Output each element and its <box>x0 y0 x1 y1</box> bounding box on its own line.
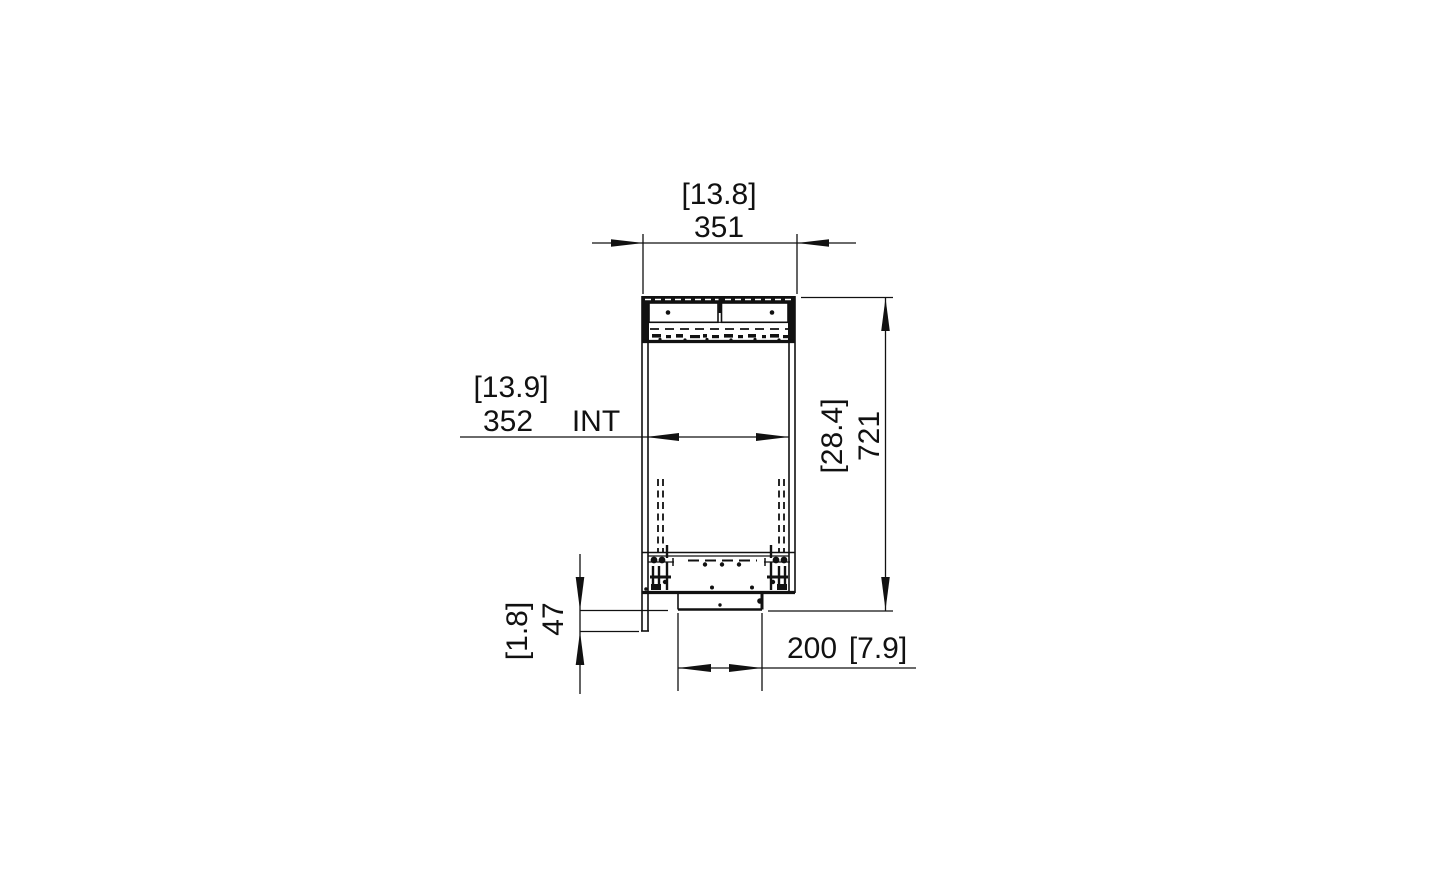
dimension-base-width: 200 [7.9] <box>678 613 916 691</box>
overall-height-imperial-label: [28.4] <box>816 398 849 473</box>
arrowhead-down-icon <box>576 577 585 611</box>
base-dot <box>644 587 648 591</box>
tray-right-hole <box>770 310 775 315</box>
base-dot <box>710 586 714 590</box>
dimension-internal-width: [13.9] 352 INT <box>460 371 789 441</box>
base-assembly <box>642 545 795 610</box>
base-drop-imperial-label: [1.8] <box>501 602 534 660</box>
burner-assembly <box>642 296 796 342</box>
hidden-bracket-lines <box>658 479 784 552</box>
tray-left-hole <box>666 310 671 315</box>
top-width-metric-label: 351 <box>694 211 744 244</box>
burner-left-cap <box>642 303 649 342</box>
arrowhead-right-icon <box>729 664 762 672</box>
top-width-imperial-label: [13.8] <box>681 178 756 211</box>
arrowhead-left-icon <box>678 664 711 672</box>
arrowhead-left-icon <box>797 239 829 247</box>
base-width-imperial-label: [7.9] <box>849 632 907 665</box>
arrowhead-down-icon <box>881 577 890 610</box>
overall-height-metric-label: 721 <box>853 411 886 461</box>
arrowhead-left-icon <box>646 433 679 441</box>
arrowhead-up-icon <box>881 298 890 331</box>
internal-width-metric-label: 352 <box>483 405 533 438</box>
arrowhead-right-icon <box>611 239 643 247</box>
dimension-base-drop: [1.8] 47 <box>501 554 668 694</box>
base-dot <box>737 562 741 566</box>
base-width-metric-label: 200 <box>787 632 837 665</box>
firebox-section-drawing: [13.8] 351 [13.9] 352 INT [28.4] 721 [1.… <box>0 0 1445 893</box>
burner-tray-right <box>722 303 789 322</box>
base-dot <box>703 562 707 566</box>
dimension-top-width: [13.8] 351 <box>592 178 856 294</box>
internal-width-imperial-label: [13.9] <box>473 371 548 404</box>
drawing-canvas: [13.8] 351 [13.9] 352 INT [28.4] 721 [1.… <box>0 0 1445 893</box>
arrowhead-up-icon <box>576 632 585 666</box>
arrowhead-right-icon <box>756 433 789 441</box>
burner-tray-left <box>649 303 718 322</box>
base-dot <box>720 562 724 566</box>
internal-width-suffix-label: INT <box>572 405 620 438</box>
base-drop-metric-label: 47 <box>537 602 570 635</box>
bottom-connection-box <box>678 593 763 610</box>
base-dot <box>750 586 754 590</box>
dimension-overall-height: [28.4] 721 <box>768 298 893 612</box>
